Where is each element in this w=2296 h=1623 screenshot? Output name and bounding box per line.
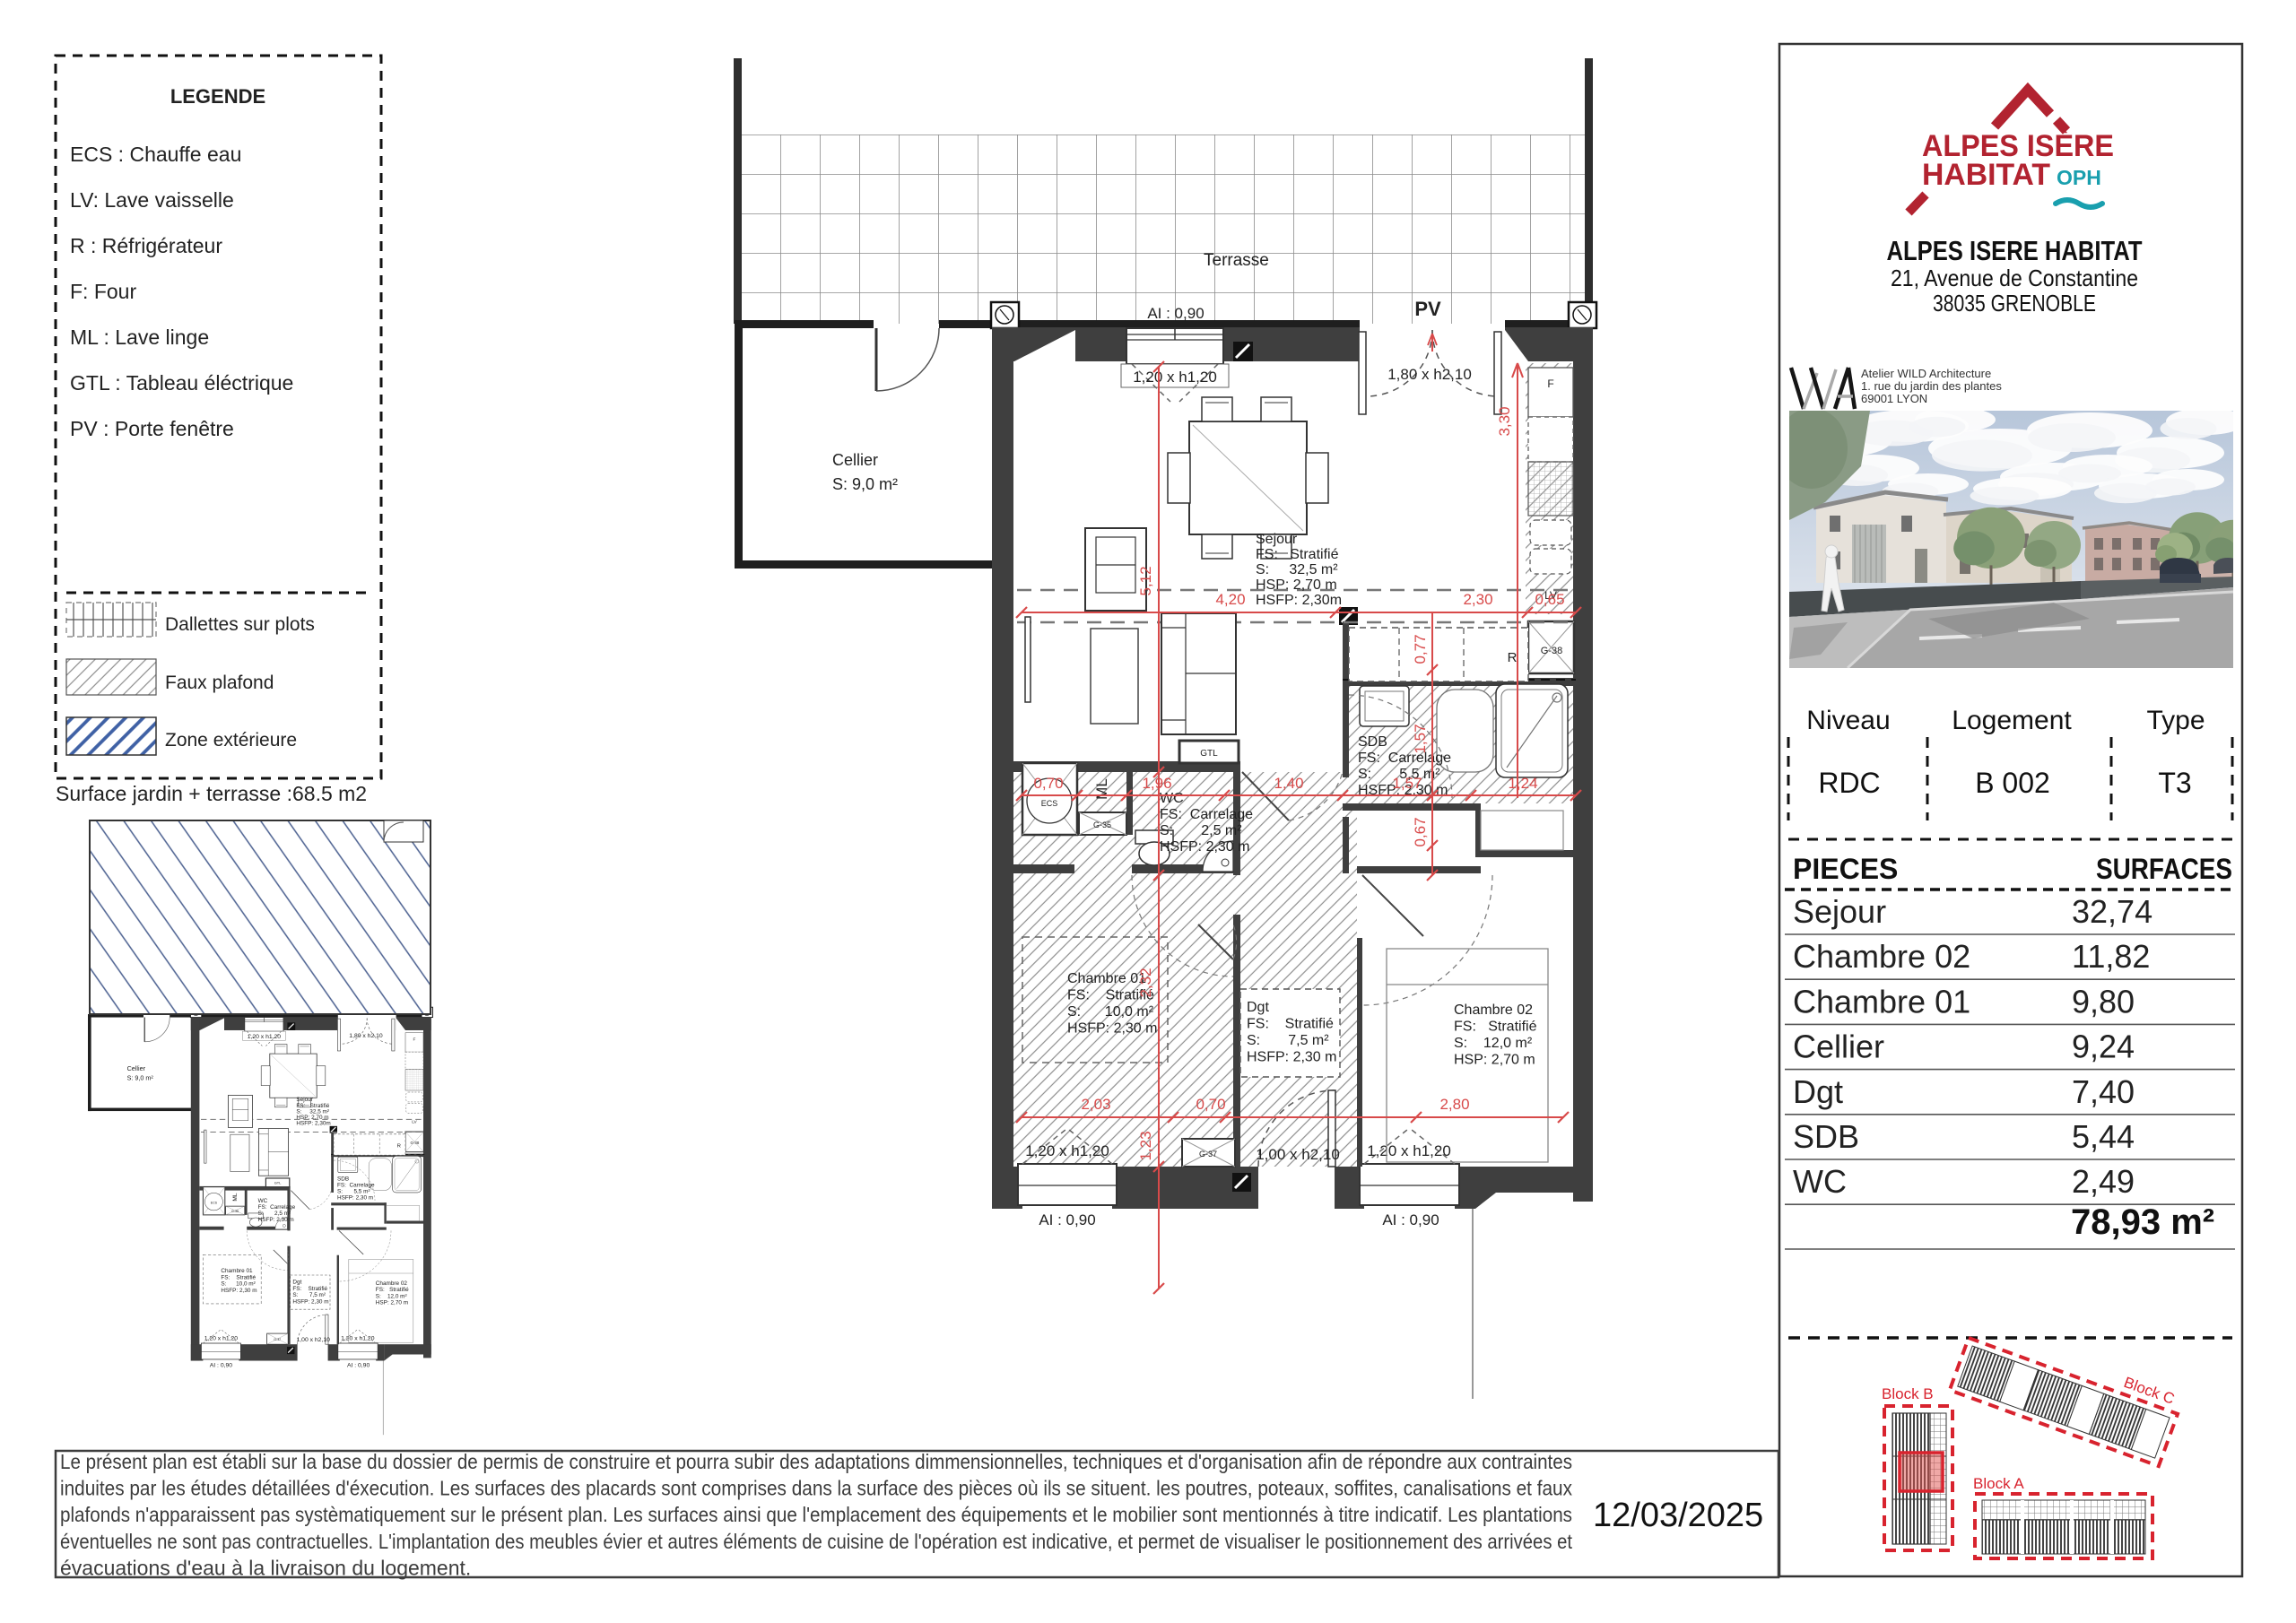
svg-text:2,03: 2,03 xyxy=(1081,1096,1110,1113)
svg-text:FS: Carrelage: FS: Carrelage xyxy=(1160,807,1253,822)
svg-text:78,93 m²: 78,93 m² xyxy=(2071,1202,2214,1242)
svg-text:Chambre 02: Chambre 02 xyxy=(1793,938,1970,975)
svg-text:HSP: 2,70 m: HSP: 2,70 m xyxy=(1454,1053,1535,1068)
svg-text:FS: Carrelage: FS: Carrelage xyxy=(1358,751,1451,766)
svg-text:HSFP: 2,30 m: HSFP: 2,30 m xyxy=(1247,1050,1336,1065)
svg-text:7,40: 7,40 xyxy=(2072,1073,2135,1110)
svg-text:FS: Stratifié: FS: Stratifié xyxy=(1247,1017,1334,1032)
svg-text:3,30: 3,30 xyxy=(1496,406,1513,436)
svg-text:Block B: Block B xyxy=(1882,1385,1934,1402)
svg-text:Sejour: Sejour xyxy=(1256,532,1298,547)
svg-text:4,20: 4,20 xyxy=(1215,591,1245,608)
svg-text:B 002: B 002 xyxy=(1975,767,2050,799)
svg-text:PV: PV xyxy=(1414,298,1441,320)
svg-text:Logement: Logement xyxy=(1952,706,2072,735)
svg-text:1,57: 1,57 xyxy=(1412,724,1429,753)
svg-text:Chambre 02: Chambre 02 xyxy=(1454,1002,1533,1018)
svg-text:11,82: 11,82 xyxy=(2072,938,2150,975)
svg-text:Le présent plan est établi sur: Le présent plan est établi sur la base d… xyxy=(60,1450,1572,1473)
svg-text:FS: Stratifié: FS: Stratifié xyxy=(1256,547,1339,562)
svg-text:R: R xyxy=(1508,650,1518,665)
svg-text:38035 GRENOBLE: 38035 GRENOBLE xyxy=(1933,290,2096,317)
svg-text:GTL: GTL xyxy=(1200,749,1218,759)
svg-text:S: 7,5 m²: S: 7,5 m² xyxy=(1247,1033,1329,1048)
svg-text:1,40: 1,40 xyxy=(1274,775,1303,792)
svg-text:1,96: 1,96 xyxy=(1142,775,1171,792)
svg-text:S: 10,0 m²: S: 10,0 m² xyxy=(1067,1004,1154,1020)
svg-text:9,24: 9,24 xyxy=(2072,1028,2135,1065)
svg-text:PIECES: PIECES xyxy=(1793,853,1898,885)
svg-text:WC: WC xyxy=(1793,1163,1847,1200)
svg-text:HSFP: 2,30m: HSFP: 2,30m xyxy=(1256,593,1342,608)
svg-text:32,74: 32,74 xyxy=(2072,893,2152,930)
svg-text:0,70: 0,70 xyxy=(1033,775,1063,792)
svg-text:Dgt: Dgt xyxy=(1793,1073,1843,1110)
svg-text:éventuelles ne sont pas contra: éventuelles ne sont pas contractuelles. … xyxy=(60,1530,1573,1553)
svg-text:2,30: 2,30 xyxy=(1463,591,1492,608)
svg-text:S: 12,0 m²: S: 12,0 m² xyxy=(1454,1036,1533,1051)
svg-text:1,80 x h2,10: 1,80 x h2,10 xyxy=(1387,366,1472,383)
svg-text:AI : 0,90: AI : 0,90 xyxy=(1039,1211,1095,1228)
svg-text:Chambre 01: Chambre 01 xyxy=(1793,983,1970,1020)
svg-text:Block A: Block A xyxy=(1973,1475,2024,1492)
svg-text:Zone extérieure: Zone extérieure xyxy=(165,730,297,751)
svg-text:OPH: OPH xyxy=(2057,166,2101,189)
svg-text:ML: ML xyxy=(1093,778,1110,800)
svg-text:LV: Lave vaisselle: LV: Lave vaisselle xyxy=(70,188,234,212)
svg-text:AI : 0,90: AI : 0,90 xyxy=(1382,1211,1439,1228)
svg-text:Sejour: Sejour xyxy=(1793,893,1886,930)
svg-text:HABITAT: HABITAT xyxy=(1922,158,2050,192)
svg-text:2,49: 2,49 xyxy=(2072,1163,2135,1200)
svg-text:Terrasse: Terrasse xyxy=(1204,251,1269,270)
svg-text:ECS : Chauffe eau: ECS : Chauffe eau xyxy=(70,143,241,166)
svg-text:R : Réfrigérateur: R : Réfrigérateur xyxy=(70,234,222,257)
svg-text:Type: Type xyxy=(2146,706,2205,735)
svg-text:Atelier WILD Architecture: Atelier WILD Architecture xyxy=(1861,367,1991,380)
svg-text:1,20 x h1,20: 1,20 x h1,20 xyxy=(1025,1142,1109,1159)
svg-text:S: 2,5 m²: S: 2,5 m² xyxy=(1160,823,1242,838)
svg-text:HSFP: 2,30 m: HSFP: 2,30 m xyxy=(1160,839,1249,855)
svg-text:1,00 x h2,10: 1,00 x h2,10 xyxy=(1256,1146,1340,1163)
svg-text:2,80: 2,80 xyxy=(1439,1096,1469,1113)
svg-text:1,57: 1,57 xyxy=(1392,775,1422,792)
svg-text:0,77: 0,77 xyxy=(1412,634,1429,664)
svg-text:21, Avenue de Constantine: 21, Avenue de Constantine xyxy=(1891,265,2138,291)
svg-text:Faux plafond: Faux plafond xyxy=(165,673,274,693)
svg-text:T3: T3 xyxy=(2158,767,2191,799)
svg-text:0,67: 0,67 xyxy=(1412,817,1429,846)
svg-text:ALPES ISERE HABITAT: ALPES ISERE HABITAT xyxy=(1887,235,2143,266)
svg-text:1,20 x h1,20: 1,20 x h1,20 xyxy=(1367,1142,1451,1159)
svg-text:HSP: 2,70 m: HSP: 2,70 m xyxy=(1256,577,1337,593)
svg-text:induites par les études détail: induites par les études détaillées d'éxe… xyxy=(60,1477,1572,1500)
svg-text:Dgt: Dgt xyxy=(1247,1000,1269,1015)
svg-text:G-35: G-35 xyxy=(1093,820,1111,829)
svg-text:SDB: SDB xyxy=(1358,734,1387,750)
svg-text:69001 LYON: 69001 LYON xyxy=(1861,392,1927,405)
svg-text:Cellier: Cellier xyxy=(832,451,878,469)
svg-text:Cellier: Cellier xyxy=(1793,1028,1884,1065)
svg-text:G-38: G-38 xyxy=(1541,646,1562,656)
svg-text:FS: Stratifié: FS: Stratifié xyxy=(1454,1020,1537,1035)
svg-text:AI : 0,90: AI : 0,90 xyxy=(1147,305,1204,322)
svg-text:ECS: ECS xyxy=(1041,799,1058,808)
svg-text:12/03/2025: 12/03/2025 xyxy=(1593,1497,1763,1534)
svg-text:Chambre 01: Chambre 01 xyxy=(1067,971,1146,986)
svg-text:Niveau: Niveau xyxy=(1806,706,1890,735)
svg-text:LEGENDE: LEGENDE xyxy=(170,85,265,108)
svg-text:1. rue du jardin des plantes: 1. rue du jardin des plantes xyxy=(1861,379,2002,393)
svg-text:ML : Lave linge: ML : Lave linge xyxy=(70,325,209,349)
svg-text:évacuations d'eau à la livrais: évacuations d'eau à la livraison du loge… xyxy=(60,1556,471,1579)
svg-text:F: Four: F: Four xyxy=(70,280,136,303)
svg-text:PV : Porte fenêtre: PV : Porte fenêtre xyxy=(70,417,234,440)
svg-text:S: 9,0 m²: S: 9,0 m² xyxy=(832,475,898,493)
svg-text:F: F xyxy=(1547,378,1553,390)
svg-text:2,32: 2,32 xyxy=(1137,968,1154,997)
svg-text:9,80: 9,80 xyxy=(2072,983,2135,1020)
svg-text:1,23: 1,23 xyxy=(1137,1131,1154,1160)
svg-text:0,70: 0,70 xyxy=(1196,1096,1225,1113)
svg-text:GTL : Tableau éléctrique: GTL : Tableau éléctrique xyxy=(70,371,293,395)
svg-text:1,24: 1,24 xyxy=(1508,775,1537,792)
svg-text:SURFACES: SURFACES xyxy=(2096,853,2232,885)
svg-text:5,12: 5,12 xyxy=(1137,566,1154,595)
svg-text:0,65: 0,65 xyxy=(1535,591,1564,608)
svg-text:RDC: RDC xyxy=(1818,767,1880,799)
svg-text:plafonds n'apparaissent pas sy: plafonds n'apparaissent pas systèmatique… xyxy=(60,1503,1572,1526)
svg-text:HSFP: 2,30 m: HSFP: 2,30 m xyxy=(1067,1021,1157,1037)
svg-text:WC: WC xyxy=(1160,791,1184,806)
svg-text:G-37: G-37 xyxy=(1199,1150,1217,1159)
svg-text:Dallettes sur plots: Dallettes sur plots xyxy=(165,614,315,635)
svg-text:SDB: SDB xyxy=(1793,1118,1859,1155)
svg-text:5,44: 5,44 xyxy=(2072,1118,2135,1155)
svg-text:S: 32,5 m²: S: 32,5 m² xyxy=(1256,562,1338,577)
svg-text:1,20 x h1,20: 1,20 x h1,20 xyxy=(1133,369,1217,386)
svg-text:Surface jardin + terrasse :68.: Surface jardin + terrasse :68.5 m2 xyxy=(56,782,367,805)
